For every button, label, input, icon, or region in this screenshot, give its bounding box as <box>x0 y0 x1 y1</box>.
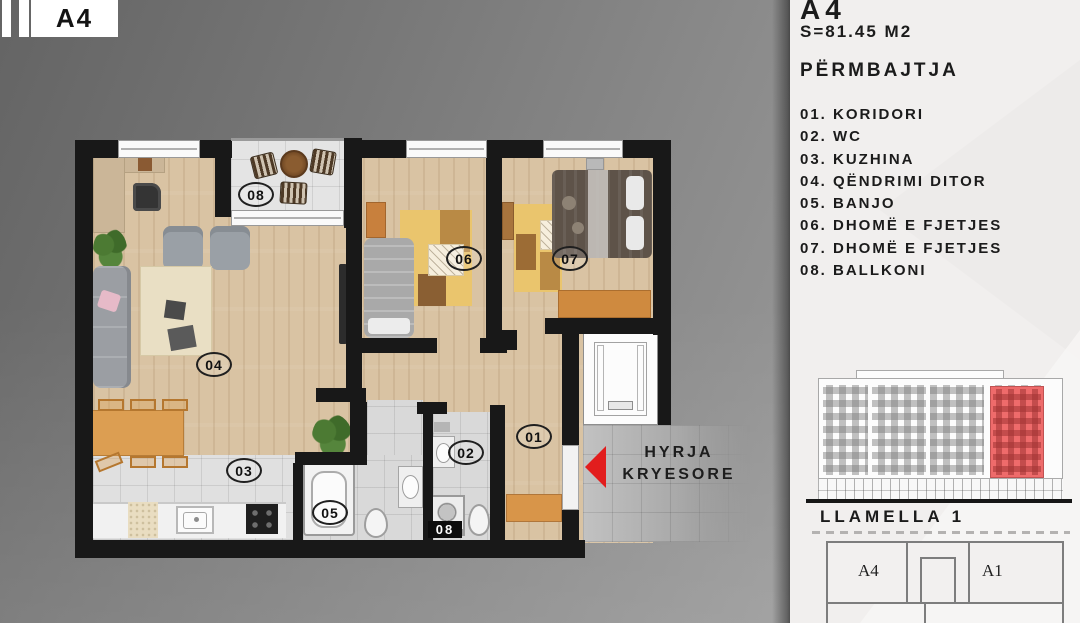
bench <box>558 290 651 318</box>
coffee-table <box>167 325 196 351</box>
toilet <box>468 504 490 536</box>
dining-chair <box>162 456 188 468</box>
building-elevation: LLAMELLA 1 A4 A1 <box>790 0 1080 623</box>
site-unit-right: A1 <box>982 561 1003 581</box>
wall <box>658 333 671 425</box>
bed-runner <box>588 170 608 258</box>
wall <box>562 510 579 542</box>
pillow <box>626 176 644 210</box>
kitchen-sink <box>176 506 214 534</box>
room-number: 07 <box>561 251 579 267</box>
wall <box>75 140 93 558</box>
toilet <box>364 508 388 538</box>
elevation-section-gap <box>868 379 872 476</box>
coffee-table <box>164 300 186 321</box>
armchair <box>210 226 250 270</box>
bed-cushion <box>572 222 584 234</box>
dining-chair <box>130 456 156 468</box>
elevation-highlight-unit <box>990 386 1044 478</box>
wall <box>344 140 406 158</box>
room-number: 02 <box>457 445 475 461</box>
site-unit-left: A4 <box>858 561 879 581</box>
dining-chair <box>162 399 188 411</box>
site-core-wall <box>968 541 970 604</box>
elevation-ground-floor <box>818 478 1063 499</box>
room-tag-utility: 08 <box>428 521 462 538</box>
window <box>406 140 487 158</box>
media-unit <box>133 183 161 211</box>
room-label-corridor: 01 <box>516 424 552 449</box>
pillow <box>626 216 644 250</box>
dining-chair <box>98 399 124 411</box>
panel-divider <box>772 0 790 623</box>
room-number: 04 <box>205 357 223 373</box>
double-bed <box>552 170 652 258</box>
building-label: LLAMELLA 1 <box>820 507 965 527</box>
balcony-chair <box>279 181 307 204</box>
stove <box>246 504 278 534</box>
counter-box <box>138 158 152 171</box>
wall <box>423 402 433 540</box>
entrance-label-line2: KRYESORE <box>608 464 750 486</box>
kitchen-counter-side <box>93 155 125 233</box>
wall <box>490 405 505 542</box>
wall <box>562 333 579 445</box>
dining-chair <box>130 399 156 411</box>
dining-table <box>92 410 184 456</box>
rug-patch <box>516 234 536 270</box>
wall <box>487 140 543 158</box>
elevation-section-gap <box>926 379 930 476</box>
nightstand <box>586 158 604 170</box>
info-panel: A4 S=81.45 M2 PËRMBAJTJA 01. KORIDORI 02… <box>790 0 1080 623</box>
room-label-bedroom-a: 06 <box>446 246 482 271</box>
bed <box>364 238 414 338</box>
elevator-rail <box>597 345 604 411</box>
wall <box>360 338 437 353</box>
wall <box>75 540 585 558</box>
entrance-label-line1: HYRJA <box>608 442 750 464</box>
wall <box>215 155 231 217</box>
wall <box>502 330 517 350</box>
balcony-table <box>280 150 308 178</box>
site-lower-stub <box>924 604 926 623</box>
site-core <box>920 557 956 604</box>
site-lower-stub <box>826 604 828 623</box>
wall <box>653 140 671 335</box>
balcony-railing <box>231 138 344 141</box>
pillow <box>368 318 410 334</box>
site-core-wall <box>906 541 908 604</box>
elevator-shaft <box>583 333 658 425</box>
highlight-windows <box>993 389 1041 475</box>
entrance-label: HYRJA KRYESORE <box>608 442 750 486</box>
bath-sink <box>398 466 423 508</box>
bed-cushion <box>562 196 576 210</box>
room-number: 03 <box>235 463 253 479</box>
apartment-plan-brochure: A4 <box>0 0 1080 623</box>
sofa <box>93 266 131 388</box>
elevator-cab <box>594 342 647 416</box>
plant <box>93 228 127 270</box>
entrance-arrow-icon <box>585 446 606 488</box>
wall <box>486 158 502 338</box>
entry-door <box>562 445 579 510</box>
kitchen-mat <box>128 502 158 538</box>
room-number: 08 <box>436 522 454 537</box>
faucet-icon <box>194 517 199 522</box>
sink-bowl <box>402 475 419 499</box>
elevator-rail <box>637 345 644 411</box>
room-label-balcony: 08 <box>238 182 274 207</box>
room-number: 01 <box>525 429 543 445</box>
dresser <box>502 202 514 240</box>
rug-patch <box>418 274 446 306</box>
elevation-baseline <box>806 499 1072 503</box>
balcony-window <box>231 210 344 226</box>
wall <box>316 388 366 402</box>
elevator-motor <box>608 401 633 410</box>
site-lower-stub <box>1062 604 1064 623</box>
balcony-chair <box>309 148 337 176</box>
wall <box>346 158 362 392</box>
armchair <box>163 226 203 270</box>
site-diagram-divider <box>812 531 1070 534</box>
wall <box>293 463 303 540</box>
room-number: 06 <box>455 251 473 267</box>
window <box>543 140 623 158</box>
room-number: 05 <box>321 505 339 521</box>
room-label-kitchen: 03 <box>226 458 262 483</box>
living-rug <box>140 266 212 356</box>
wall <box>545 318 671 334</box>
window <box>118 140 200 158</box>
wc-shelf <box>434 422 450 432</box>
room-label-bedroom-b: 07 <box>552 246 588 271</box>
wall <box>295 452 367 465</box>
room-label-living: 04 <box>196 352 232 377</box>
wall <box>417 402 447 414</box>
room-number: 08 <box>247 187 265 203</box>
entry-mat <box>506 494 562 522</box>
floor-plan: 08 06 07 04 03 05 02 01 08 HYRJA KRYESOR… <box>0 0 790 623</box>
sofa-pillow <box>97 289 122 312</box>
wall <box>350 402 367 458</box>
room-label-wc: 02 <box>448 440 484 465</box>
dresser <box>366 202 386 238</box>
room-label-bath: 05 <box>312 500 348 525</box>
